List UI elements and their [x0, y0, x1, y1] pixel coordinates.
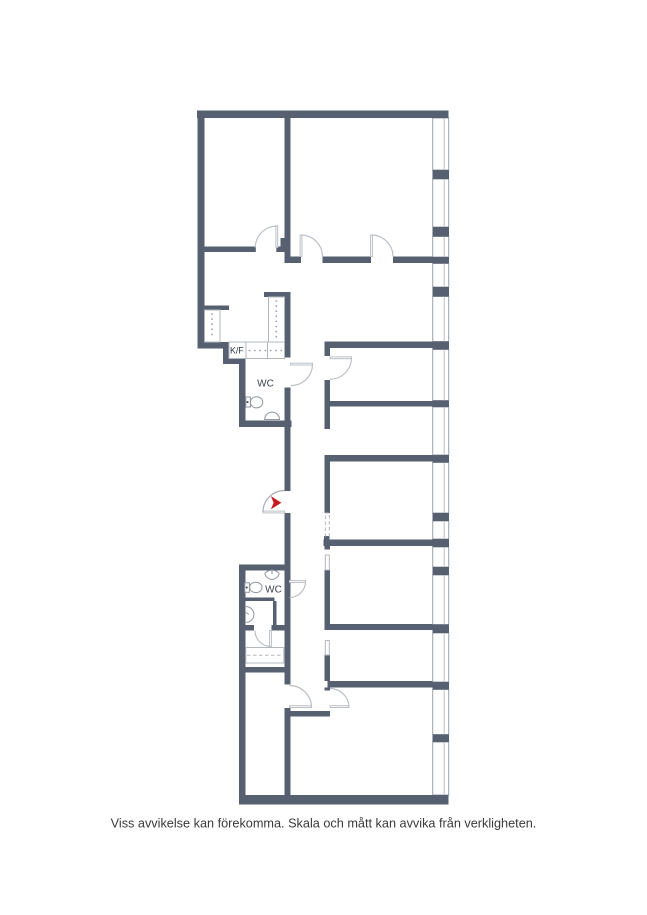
svg-text:K/F: K/F: [230, 346, 244, 356]
svg-text:Viss avvikelse kan förekomma.: Viss avvikelse kan förekomma. Skala och …: [111, 817, 537, 831]
svg-text:WC: WC: [265, 585, 282, 596]
svg-text:WC: WC: [257, 379, 274, 390]
